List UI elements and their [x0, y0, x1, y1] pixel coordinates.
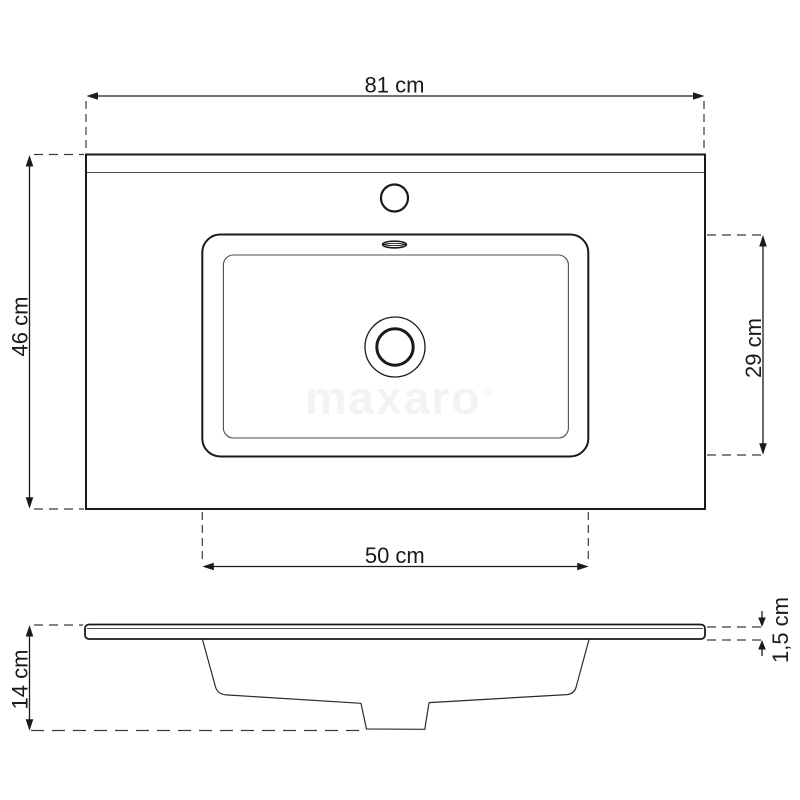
svg-text:14 cm: 14 cm [8, 650, 33, 710]
svg-text:50 cm: 50 cm [365, 543, 425, 568]
svg-text:1,5 cm: 1,5 cm [768, 597, 793, 663]
svg-text:maxaro: maxaro [305, 371, 481, 424]
svg-text:®: ® [483, 383, 493, 398]
svg-text:81 cm: 81 cm [365, 73, 425, 98]
svg-text:46 cm: 46 cm [8, 297, 33, 357]
svg-text:29 cm: 29 cm [741, 318, 766, 378]
